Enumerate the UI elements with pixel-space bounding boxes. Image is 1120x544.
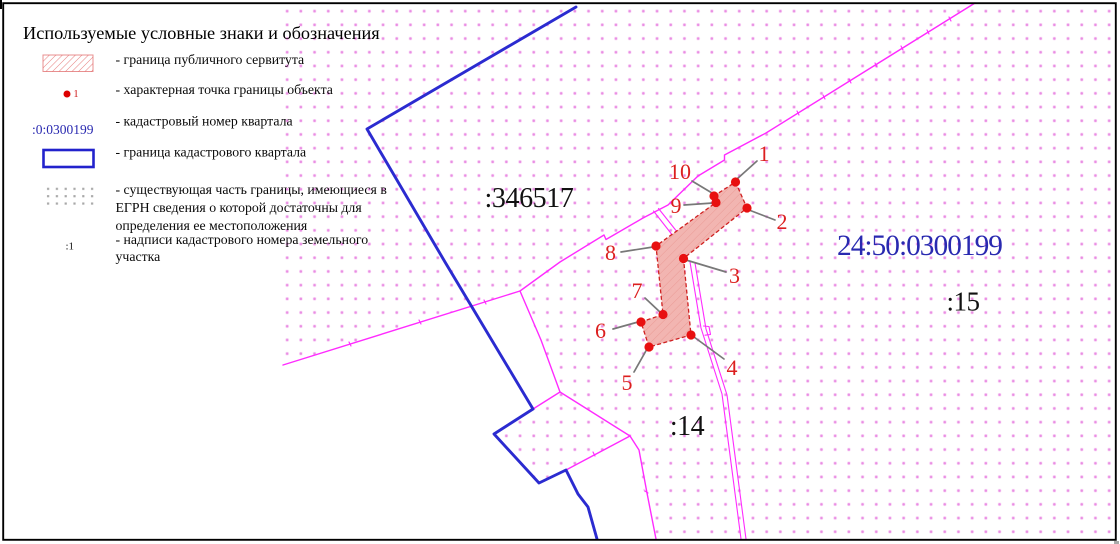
svg-text:10: 10 [669,159,691,184]
svg-text:участка: участка [116,249,161,264]
svg-text:- граница кадастрового квартал: - граница кадастрового квартала [116,144,307,159]
svg-text:- кадастровый номер квартала: - кадастровый номер квартала [116,113,293,128]
svg-text:1: 1 [759,141,770,166]
svg-text:5: 5 [622,370,633,395]
svg-text:- надписи кадастрового номера: - надписи кадастрового номера земельного [116,232,369,247]
svg-text:- граница публичного сервитута: - граница публичного сервитута [116,52,305,67]
svg-text:1: 1 [74,89,79,100]
svg-text:ЕГРН сведения о которой достат: ЕГРН сведения о которой достаточны для [116,200,363,215]
svg-text:- характерная точка границы об: - характерная точка границы объекта [116,82,333,97]
svg-text::1: :1 [66,241,75,253]
svg-text:6: 6 [595,318,606,343]
svg-text::15: :15 [946,287,979,317]
svg-text::14: :14 [670,411,705,442]
svg-text:7: 7 [632,278,643,303]
svg-text:определения ее местоположения: определения ее местоположения [116,218,308,233]
svg-text:2: 2 [777,209,788,234]
svg-text::346517: :346517 [485,183,574,214]
svg-text:4: 4 [727,355,738,380]
svg-text:3: 3 [729,263,740,288]
svg-text:9: 9 [671,193,682,218]
svg-text:8: 8 [605,240,616,265]
svg-text:24:50:0300199: 24:50:0300199 [837,230,1002,262]
svg-text::0:0300199: :0:0300199 [32,122,94,137]
svg-text:Используемые условные знаки и: Используемые условные знаки и обозначени… [23,23,380,43]
svg-text:- существующая часть границы,: - существующая часть границы, имеющиеся … [116,182,388,197]
